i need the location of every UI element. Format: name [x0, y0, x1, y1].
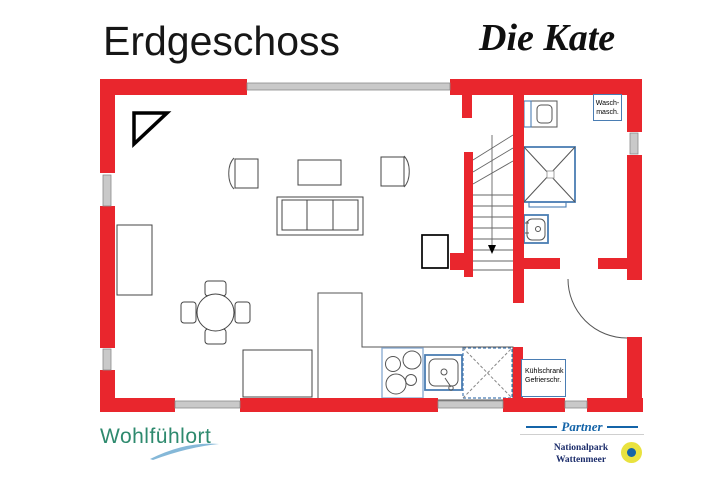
dining-chair	[181, 302, 196, 323]
pantry-cabinet	[422, 235, 448, 268]
partner-label: Partner	[561, 419, 602, 435]
stair-direction-arrow-icon	[488, 245, 496, 254]
partner-org-line1: Nationalpark	[546, 442, 616, 454]
dining-chair	[235, 302, 250, 323]
partner-logo: Partner Nationalpark Wattenmeer	[520, 420, 644, 478]
armchair-left	[229, 158, 258, 189]
entrance-door-arc	[568, 279, 627, 338]
dresser	[117, 225, 152, 295]
washer-label-line2: masch.	[596, 109, 619, 116]
nationalpark-logo-icon	[621, 442, 642, 463]
stove	[382, 348, 423, 398]
fridge-label-line1: Kühlschrank	[525, 368, 564, 375]
fridge-label: Kühlschrank Gefrierschr.	[521, 359, 566, 397]
toilet	[524, 101, 557, 127]
north-triangle-icon	[134, 113, 167, 144]
dishwasher	[463, 348, 512, 398]
staircase	[473, 135, 513, 270]
brand-logo-text: Wohlfühlort	[100, 425, 211, 449]
partner-line-right	[607, 426, 638, 428]
dining-table	[197, 294, 234, 331]
washer-label-line1: Wasch-	[596, 100, 619, 107]
shower	[524, 147, 575, 207]
sideboard	[243, 350, 312, 397]
partner-org-name: Nationalpark Wattenmeer	[546, 442, 616, 466]
dining-set	[181, 281, 250, 344]
coffee-table	[298, 160, 341, 185]
floor-plan-page: { "header": { "floor_title": "Erdgeschos…	[0, 0, 720, 480]
partner-line-left	[526, 426, 557, 428]
floor-plan-drawing	[0, 0, 720, 480]
nationalpark-logo-dot	[627, 448, 636, 457]
kitchen-sink	[425, 355, 462, 390]
sofa	[277, 197, 363, 235]
partner-org-line2: Wattenmeer	[546, 454, 616, 466]
washbasin	[524, 215, 548, 243]
armchair-right	[381, 156, 409, 187]
fridge-label-line2: Gefrierschr.	[525, 377, 561, 384]
washing-machine-label: Wasch- masch.	[593, 94, 622, 121]
partner-header: Partner	[520, 420, 644, 433]
